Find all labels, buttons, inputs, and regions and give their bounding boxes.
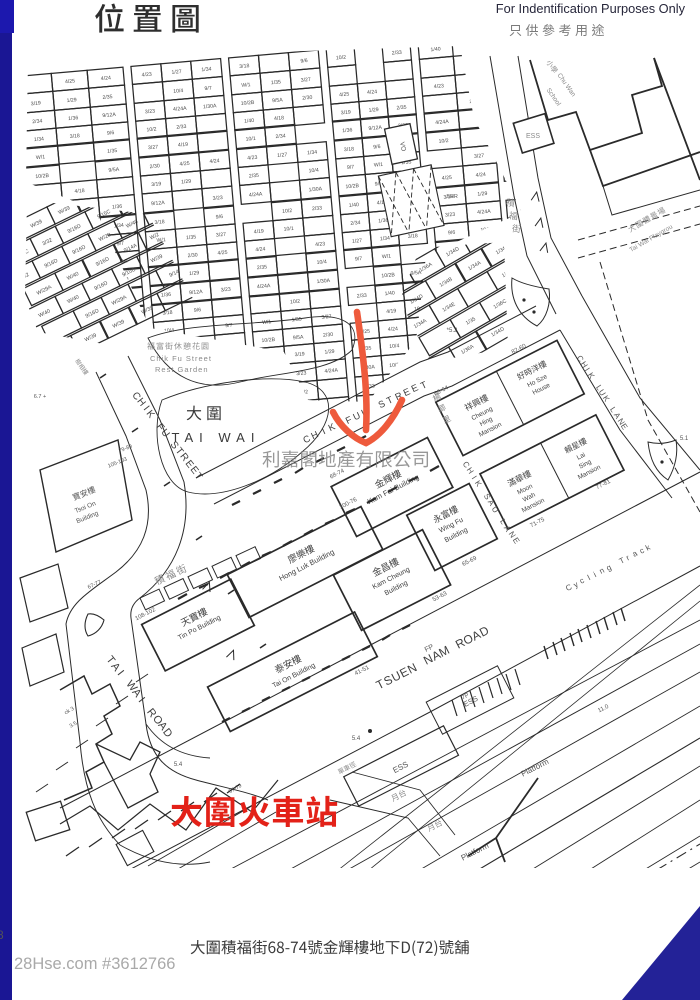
svg-text:4/19: 4/19 [525,241,536,248]
svg-text:10/2B: 10/2B [381,272,396,279]
svg-text:2/30: 2/30 [187,252,198,259]
svg-text:9/16D: 9/16D [95,256,110,268]
svg-text:4/18: 4/18 [507,40,518,47]
svg-text:2/33: 2/33 [391,50,402,57]
svg-text:Rest Garden: Rest Garden [155,365,209,374]
svg-text:SHR: SHR [446,194,458,200]
svg-text:10/2: 10/2 [282,208,293,215]
svg-text:1/29: 1/29 [368,107,379,114]
svg-text:10/2B: 10/2B [35,173,50,180]
svg-text:3/32: 3/32 [41,237,53,247]
svg-text:9/12A: 9/12A [189,289,204,296]
svg-text:10/2: 10/2 [336,55,347,62]
svg-text:11.0: 11.0 [597,704,610,715]
svg-text:4/19: 4/19 [466,62,477,69]
svg-text:4/25: 4/25 [179,161,190,168]
svg-text:4/19: 4/19 [92,388,103,395]
svg-text:9/6: 9/6 [92,369,100,376]
svg-text:1/34B: 1/34B [519,310,534,322]
svg-text:K: K [473,479,484,489]
svg-text:1/34A: 1/34A [467,260,482,272]
svg-text:5.4: 5.4 [352,736,361,742]
svg-text:6.7 +: 6.7 + [34,394,46,400]
svg-text:School: School [545,87,562,108]
svg-text:1/34: 1/34 [201,66,212,73]
svg-text:g: g [605,563,613,573]
svg-text:9/16D: 9/16D [67,223,82,235]
svg-text:W/2B: W/2B [98,232,113,243]
svg-text:9/15C: 9/15C [96,209,111,221]
svg-text:3.5: 3.5 [69,721,79,730]
svg-text:4/24: 4/24 [475,172,486,179]
svg-text:3/18: 3/18 [408,233,419,240]
svg-text:1/36C: 1/36C [493,298,508,310]
svg-text:1/34: 1/34 [121,313,132,320]
svg-text:Chik Fu Street: Chik Fu Street [150,354,212,363]
svg-text:4/25: 4/25 [217,250,228,257]
svg-text:79-89: 79-89 [118,444,133,455]
svg-text:c: c [578,576,586,586]
svg-text:10/4: 10/4 [316,259,327,266]
svg-text:3/23: 3/23 [89,352,100,359]
svg-text:W/1: W/1 [241,82,251,89]
svg-text:10/2: 10/2 [480,227,491,234]
svg-text:1/34E: 1/34E [441,301,456,313]
svg-text:1/34: 1/34 [34,136,45,143]
svg-text:1/36C: 1/36C [434,359,449,371]
svg-text:9/6: 9/6 [300,58,308,65]
svg-text:3/27: 3/27 [300,77,311,84]
svg-text:n: n [598,566,606,576]
svg-text:3/27: 3/27 [474,153,485,160]
svg-text:W/29A: W/29A [36,284,53,297]
svg-text:2/35: 2/35 [396,105,407,112]
svg-text:W/39: W/39 [150,254,164,265]
svg-text:9/12A: 9/12A [51,355,66,362]
svg-text:1/30A: 1/30A [520,205,535,212]
svg-text:3/18: 3/18 [54,372,65,379]
svg-text:9/12A: 9/12A [102,112,117,119]
svg-text:1/27: 1/27 [467,80,478,87]
svg-text:l: l [586,573,592,582]
svg-text:2/33: 2/33 [312,205,323,212]
svg-text:1/27: 1/27 [352,238,363,245]
svg-text:5.1: 5.1 [680,436,689,442]
svg-text:9/6: 9/6 [216,214,224,221]
svg-text:3/18: 3/18 [154,219,165,226]
svg-text:10/1: 10/1 [509,59,520,66]
svg-text:1/36A: 1/36A [558,234,573,246]
svg-text:4/18: 4/18 [274,115,285,122]
svg-text:1/34B: 1/34B [439,276,454,288]
svg-text:9/5A: 9/5A [272,97,284,104]
svg-text:10/2: 10/2 [298,389,309,396]
svg-text:W/40: W/40 [66,294,80,305]
svg-text:1/34E: 1/34E [495,244,510,256]
svg-text:4/19: 4/19 [254,228,265,235]
svg-text:4/23: 4/23 [93,407,104,414]
svg-text:3/27: 3/27 [216,232,227,239]
svg-text:W/29A: W/29A [181,167,198,180]
svg-text:W/39: W/39 [57,205,71,216]
svg-text:W/40: W/40 [38,308,52,319]
svg-text:1/36: 1/36 [161,292,172,299]
svg-text:9/16D: 9/16D [93,280,108,292]
svg-text:9/6: 9/6 [107,130,115,137]
svg-text:y: y [572,580,580,590]
svg-text:3/23: 3/23 [220,287,231,294]
svg-text:3/32: 3/32 [205,204,217,214]
svg-text:a: a [631,549,640,559]
svg-text:3/19: 3/19 [151,181,162,188]
svg-text:9/5A: 9/5A [293,334,305,341]
svg-text:1/30A: 1/30A [308,186,323,193]
svg-text:ESS: ESS [392,760,410,775]
svg-text:W/29A: W/29A [111,294,128,307]
svg-text:1/34E: 1/34E [528,198,543,210]
svg-text:Platform: Platform [520,757,551,779]
svg-text:9/7: 9/7 [513,95,521,102]
svg-text:1/30A: 1/30A [512,112,527,119]
svg-text:10/4: 10/4 [308,167,319,174]
svg-text:1/40: 1/40 [244,118,255,125]
svg-text:9/16D: 9/16D [44,258,59,270]
svg-text:9/5A: 9/5A [457,356,469,363]
svg-text:9/16D: 9/16D [85,308,100,320]
svg-text:*5.2: *5.2 [447,328,458,334]
svg-text:1/29: 1/29 [181,179,192,186]
svg-text:9/16D: 9/16D [54,346,69,358]
svg-text:2/35: 2/35 [102,94,113,101]
svg-text:2/30: 2/30 [302,95,313,102]
svg-text:W/2B: W/2B [185,189,200,200]
svg-text:1/40: 1/40 [384,290,395,297]
svg-text:1/35: 1/35 [501,269,513,279]
svg-text:4/23: 4/23 [454,320,465,327]
svg-text:3/18: 3/18 [70,133,81,140]
svg-text:4/18: 4/18 [74,188,85,195]
svg-text:TAI WAI: TAI WAI [172,430,261,445]
svg-text:9/14A: 9/14A [123,243,138,255]
svg-text:1/36: 1/36 [495,391,506,398]
svg-text:Tai Wai Playgrou: Tai Wai Playgrou [628,223,674,254]
svg-text:2/34: 2/34 [350,220,361,227]
svg-text:W/39: W/39 [178,217,192,228]
svg-text:10/1: 10/1 [245,136,256,143]
svg-text:10/1: 10/1 [283,226,294,233]
svg-text:2/33: 2/33 [176,124,187,131]
svg-text:10/2B: 10/2B [261,337,276,344]
svg-text:2/34: 2/34 [461,394,472,401]
svg-text:1/36: 1/36 [529,296,540,303]
svg-text:1/35: 1/35 [186,234,197,241]
svg-text:W/1: W/1 [270,411,280,418]
svg-text:1/34B: 1/34B [548,266,563,278]
svg-text:9/7: 9/7 [233,414,241,421]
svg-text:10/2B: 10/2B [241,100,256,107]
svg-text:2/34: 2/34 [169,381,180,388]
svg-text:3/23: 3/23 [145,109,156,116]
svg-text:4/23: 4/23 [434,83,445,90]
svg-text:1/29: 1/29 [51,338,62,345]
svg-text:10/4: 10/4 [202,417,213,424]
svg-text:4/24: 4/24 [367,89,378,96]
svg-text:2/33: 2/33 [357,293,368,300]
svg-text:10/2B: 10/2B [345,183,360,190]
svg-text:4/24: 4/24 [209,158,220,165]
svg-text:2/33: 2/33 [523,223,534,230]
svg-text:r: r [625,553,632,562]
svg-text:1/35: 1/35 [532,331,543,338]
svg-text:ESS: ESS [526,133,540,140]
svg-text:W/1: W/1 [382,253,392,260]
svg-text:1/34E: 1/34E [574,278,589,290]
svg-text:4/25: 4/25 [442,175,453,182]
svg-text:9/6: 9/6 [448,230,456,237]
svg-text:3/19: 3/19 [294,351,305,358]
svg-text:108-102: 108-102 [134,607,157,623]
svg-text:U: U [490,505,501,515]
svg-text:1/27: 1/27 [277,152,288,159]
svg-text:3/19: 3/19 [95,426,106,433]
svg-text:4/24A: 4/24A [257,283,272,290]
svg-text:4/19: 4/19 [178,142,189,149]
svg-text:ck 3: ck 3 [64,706,76,716]
svg-text:4/24A: 4/24A [249,191,264,198]
svg-text:2/35: 2/35 [172,419,183,426]
svg-text:77-81: 77-81 [595,479,612,492]
svg-text:4/24A: 4/24A [123,349,138,356]
svg-text:1/36: 1/36 [112,204,123,211]
svg-text:3/18: 3/18 [239,63,250,70]
svg-text:9/6: 9/6 [373,144,381,151]
svg-text:4/23: 4/23 [50,320,61,327]
svg-text:1/34: 1/34 [170,400,181,407]
svg-text:1/35: 1/35 [465,316,477,326]
svg-text:1/29: 1/29 [477,191,488,198]
svg-text:9/7: 9/7 [225,323,233,330]
svg-text:3/27: 3/27 [56,391,67,398]
svg-text:4/24A: 4/24A [477,209,492,216]
svg-text:1/34D: 1/34D [490,326,505,338]
svg-text:1/35: 1/35 [271,79,282,86]
svg-text:10/4: 10/4 [469,98,480,105]
svg-text:9/14A: 9/14A [168,267,183,279]
svg-text:67-77: 67-77 [87,579,102,590]
svg-text:10/2: 10/2 [290,299,301,306]
svg-text:W/39: W/39 [30,219,44,230]
svg-text:4/25: 4/25 [65,78,76,85]
svg-text:1/34A: 1/34A [501,214,516,226]
svg-text:1/27: 1/27 [171,69,182,76]
svg-text:4/23: 4/23 [315,241,326,248]
svg-text:W/40: W/40 [126,195,140,206]
svg-text:Chu Wan: Chu Wan [556,72,577,98]
svg-text:1/30A: 1/30A [203,103,218,110]
svg-text:3/19: 3/19 [31,100,42,107]
svg-text:k: k [644,542,653,552]
svg-text:9/6: 9/6 [269,392,277,399]
svg-text:1/34D: 1/34D [445,246,460,258]
svg-text:W/39: W/39 [112,319,126,330]
svg-text:W/1: W/1 [374,162,384,169]
svg-text:1/40: 1/40 [227,357,238,364]
svg-text:4/24: 4/24 [58,410,69,417]
svg-text:4/23: 4/23 [247,155,258,162]
svg-text:3/23: 3/23 [445,212,456,219]
svg-text:W/39: W/39 [84,333,98,344]
svg-text:1/35: 1/35 [299,408,310,415]
svg-text:3/18: 3/18 [200,398,211,405]
svg-text:1/30A: 1/30A [316,278,331,285]
svg-text:10/2: 10/2 [146,126,157,133]
svg-text:1/34B: 1/34B [473,230,488,242]
svg-text:3/32: 3/32 [18,272,30,282]
svg-text:2/34: 2/34 [32,118,43,125]
svg-text:4/18: 4/18 [265,354,276,361]
svg-text:1/34: 1/34 [380,236,391,243]
svg-text:1/35: 1/35 [107,148,118,155]
svg-text:10/1: 10/1 [48,302,59,309]
svg-text:9/15C: 9/15C [15,249,30,261]
svg-text:W/40: W/40 [66,271,80,282]
svg-text:105-103: 105-103 [107,457,128,470]
svg-text:1/30A: 1/30A [164,345,179,352]
svg-text:3/18: 3/18 [344,146,355,153]
svg-text:3/19: 3/19 [340,109,351,116]
svg-text:T: T [618,556,627,566]
svg-text:5.4: 5.4 [174,762,183,768]
svg-text:1/40: 1/40 [38,191,49,198]
svg-text:3/27: 3/27 [148,144,159,151]
svg-text:4/24: 4/24 [101,75,112,82]
svg-text:10/4: 10/4 [173,88,184,95]
svg-text:4/25: 4/25 [483,264,494,271]
svg-text:1/36: 1/36 [68,115,79,122]
svg-text:9/16D: 9/16D [71,244,86,256]
svg-text:3/23: 3/23 [212,195,223,202]
svg-text:9/7: 9/7 [204,85,212,92]
svg-text:82-60: 82-60 [511,343,528,356]
svg-text:9/6: 9/6 [194,307,202,314]
svg-text:9/7: 9/7 [355,256,363,263]
svg-text:4/24A: 4/24A [435,119,450,126]
svg-text:4/25: 4/25 [339,92,350,99]
svg-text:1/34: 1/34 [307,150,318,157]
svg-text:10/2: 10/2 [438,138,449,145]
svg-text:4/24: 4/24 [255,246,266,253]
svg-text:4/23: 4/23 [141,72,152,79]
svg-text:1/36A: 1/36A [460,344,475,356]
svg-text:1/40: 1/40 [430,46,441,53]
svg-text:9/12A: 9/12A [151,200,166,207]
svg-text:2/30: 2/30 [491,353,502,360]
svg-text:1/34: 1/34 [531,314,542,321]
svg-text:9/7: 9/7 [347,164,355,171]
svg-text:2/35: 2/35 [249,173,260,180]
svg-text:W/2B: W/2B [225,240,240,251]
svg-text:W/39: W/39 [1,233,15,244]
svg-text:W/1: W/1 [36,154,46,161]
svg-text:4/24A: 4/24A [173,106,188,113]
svg-text:9/12A: 9/12A [368,125,383,132]
svg-text:1/29: 1/29 [189,270,200,277]
svg-text:71-75: 71-75 [529,517,546,530]
svg-text:1/36: 1/36 [342,127,353,134]
svg-text:i: i [592,570,598,579]
svg-text:65-69: 65-69 [462,555,479,568]
svg-text:1/40: 1/40 [349,202,360,209]
svg-text:2/30: 2/30 [149,163,160,170]
svg-text:1/29: 1/29 [66,97,77,104]
svg-text:1/35: 1/35 [527,227,539,237]
svg-text:2/35: 2/35 [257,264,268,271]
svg-text:9/5A: 9/5A [108,167,120,174]
svg-text:2/34: 2/34 [275,133,286,140]
